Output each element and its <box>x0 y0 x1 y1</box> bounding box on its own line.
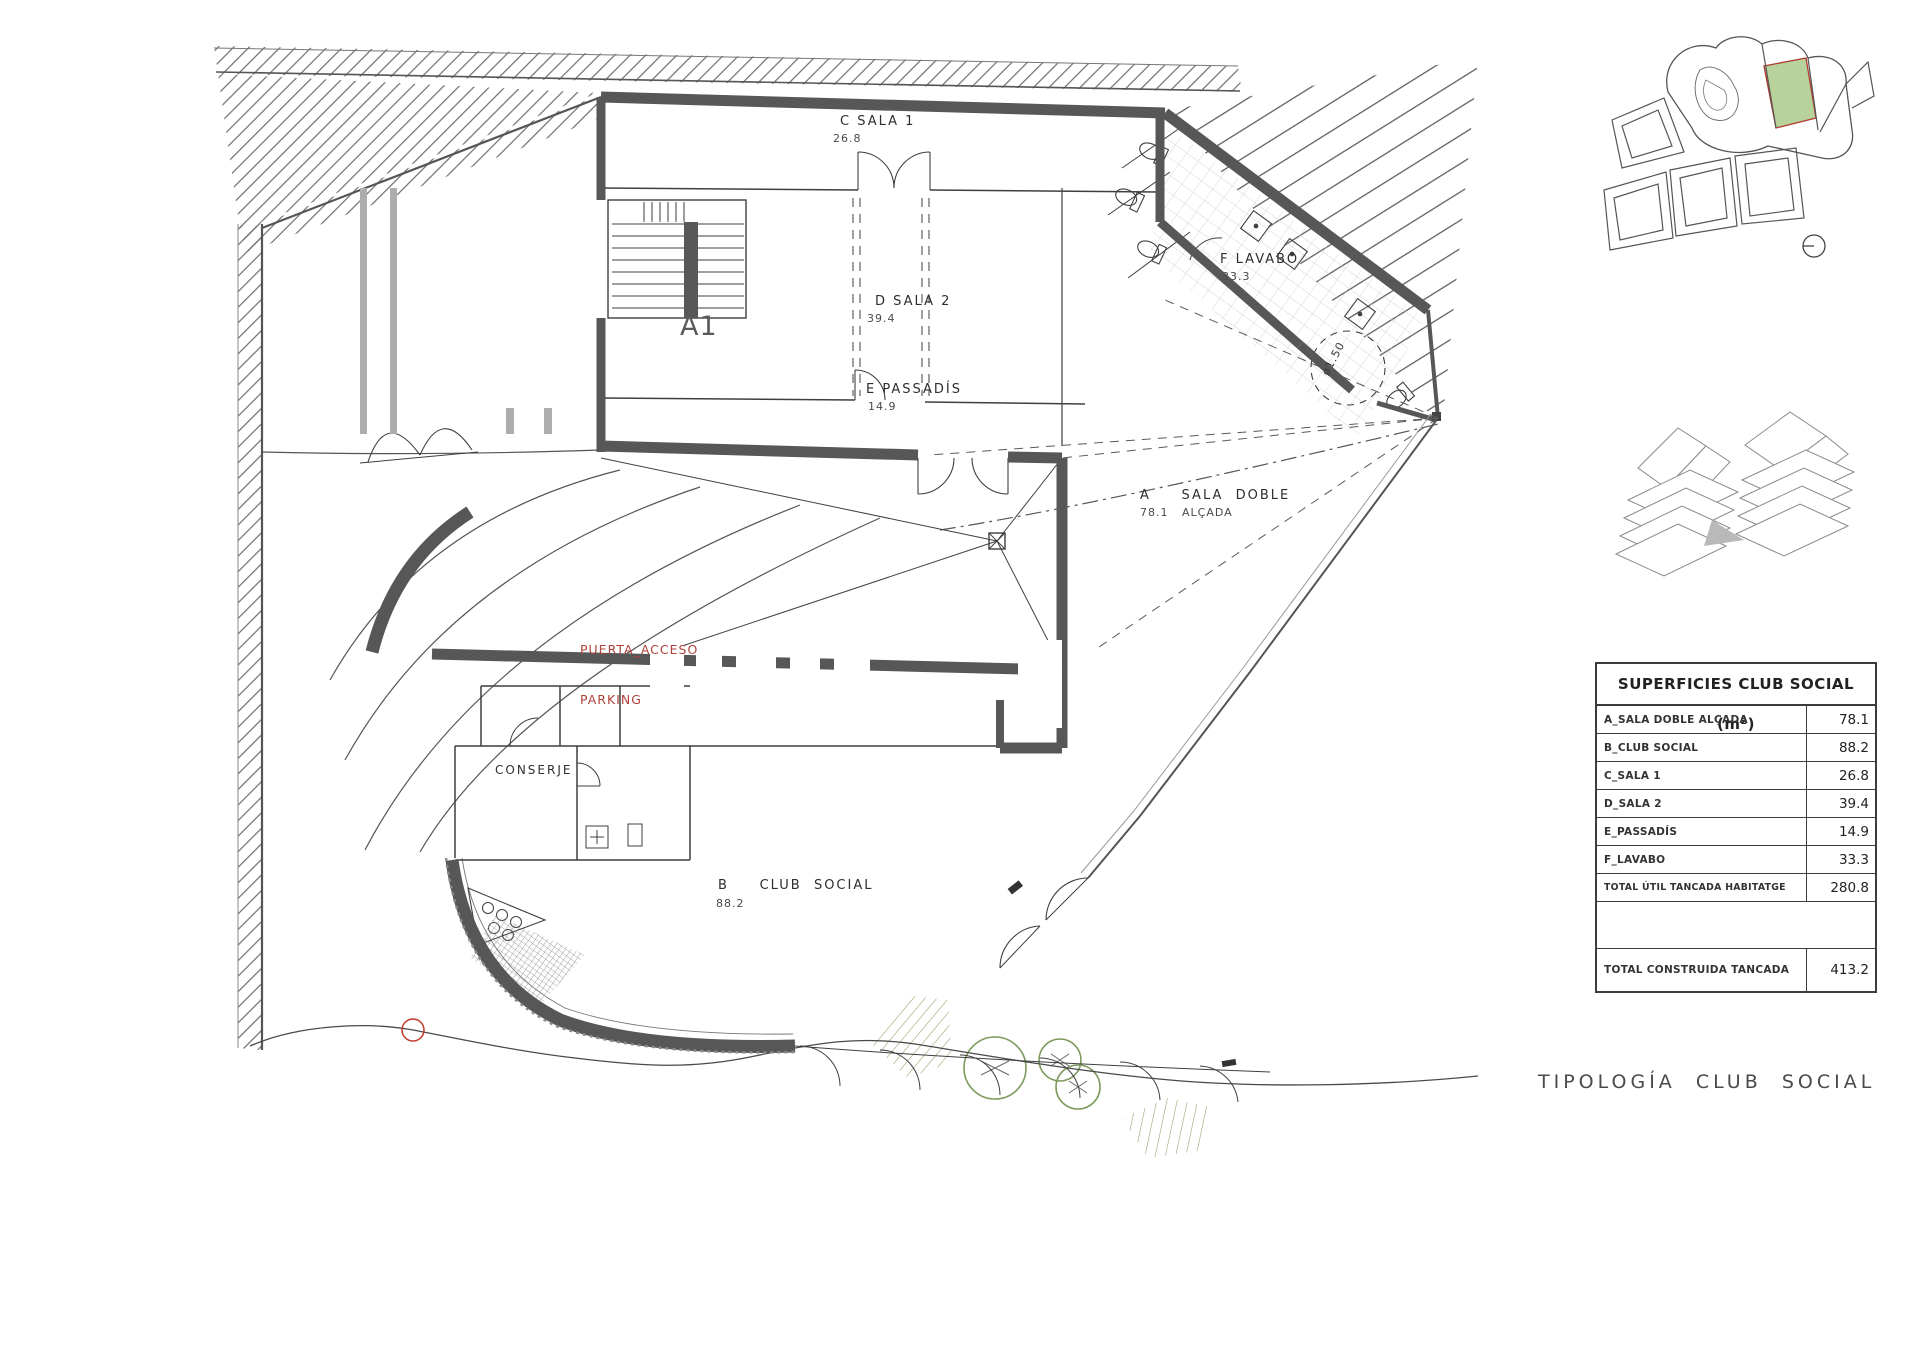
room-area-lavabo: 33.3 <box>1222 271 1251 283</box>
row-label: TOTAL ÚTIL TANCADA HABITATGE <box>1597 874 1806 901</box>
row-value: 26.8 <box>1806 762 1875 789</box>
parking-access-line1: PUERTA_ACCESO <box>580 642 698 659</box>
row-value: 88.2 <box>1806 734 1875 761</box>
room-label-lavabo: F LAVABO <box>1220 253 1299 267</box>
table-row: A_SALA DOBLE ALÇADA 78.1 <box>1597 706 1875 734</box>
row-label: C_SALA 1 <box>1597 762 1806 789</box>
areas-table-title: SUPERFICIES CLUB SOCIAL (m²) <box>1597 664 1875 706</box>
row-label: B_CLUB SOCIAL <box>1597 734 1806 761</box>
row-value: 413.2 <box>1806 949 1875 991</box>
parking-access-annotation: PUERTA_ACCESO PARKING <box>580 608 698 726</box>
axonometric-sketch <box>1616 412 1854 576</box>
row-value: 14.9 <box>1806 818 1875 845</box>
room-label-sala-doble: A SALA DOBLE <box>1140 489 1290 503</box>
room-area-sala-doble: 78.1 ALÇADA <box>1140 507 1233 519</box>
row-label: D_SALA 2 <box>1597 790 1806 817</box>
drawing-sheet: C SALA 1 26.8 D SALA 2 39.4 F LAVABO 33.… <box>0 0 1920 1356</box>
row-value: 280.8 <box>1806 874 1875 901</box>
row-value: 78.1 <box>1806 706 1875 733</box>
room-label-sala1: C SALA 1 <box>840 115 915 129</box>
sheet-title: TIPOLOGÍA CLUB SOCIAL <box>1538 1072 1875 1093</box>
table-total-row: TOTAL CONSTRUIDA TANCADA 413.2 <box>1597 949 1875 991</box>
room-label-club-social: B CLUB SOCIAL <box>718 879 873 893</box>
staircase <box>608 200 746 318</box>
watermark <box>650 640 1130 728</box>
parking-access-line2: PARKING <box>580 692 698 709</box>
site-location-map <box>1604 37 1874 257</box>
room-area-sala2: 39.4 <box>867 313 896 325</box>
table-row: B_CLUB SOCIAL 88.2 <box>1597 734 1875 762</box>
row-value: 39.4 <box>1806 790 1875 817</box>
table-row: TOTAL ÚTIL TANCADA HABITATGE 280.8 <box>1597 874 1875 902</box>
site-boundary-hatch <box>214 46 1478 1050</box>
north-symbol <box>1803 235 1825 257</box>
room-area-club-social: 88.2 <box>716 898 745 910</box>
row-label: F_LAVABO <box>1597 846 1806 873</box>
terrain-contour-line <box>250 1026 1478 1085</box>
room-label-conserje: CONSERJE <box>495 764 572 777</box>
areas-table: SUPERFICIES CLUB SOCIAL (m²) A_SALA DOBL… <box>1595 662 1877 993</box>
row-label: A_SALA DOBLE ALÇADA <box>1597 706 1806 733</box>
row-value: 33.3 <box>1806 846 1875 873</box>
room-label-sala2: D SALA 2 <box>875 295 951 309</box>
row-label: E_PASSADÍS <box>1597 818 1806 845</box>
table-row: C_SALA 1 26.8 <box>1597 762 1875 790</box>
table-spacer-row <box>1597 902 1875 949</box>
section-marker-a1: A1 <box>680 312 718 342</box>
highlighted-plot <box>1764 58 1816 128</box>
room-label-passadis: E PASSADÍS <box>866 383 962 397</box>
row-label: TOTAL CONSTRUIDA TANCADA <box>1597 949 1806 991</box>
table-row: E_PASSADÍS 14.9 <box>1597 818 1875 846</box>
vegetation <box>250 995 1478 1158</box>
room-area-passadis: 14.9 <box>868 401 897 413</box>
table-row: F_LAVABO 33.3 <box>1597 846 1875 874</box>
table-row: D_SALA 2 39.4 <box>1597 790 1875 818</box>
room-area-sala1: 26.8 <box>833 133 862 145</box>
